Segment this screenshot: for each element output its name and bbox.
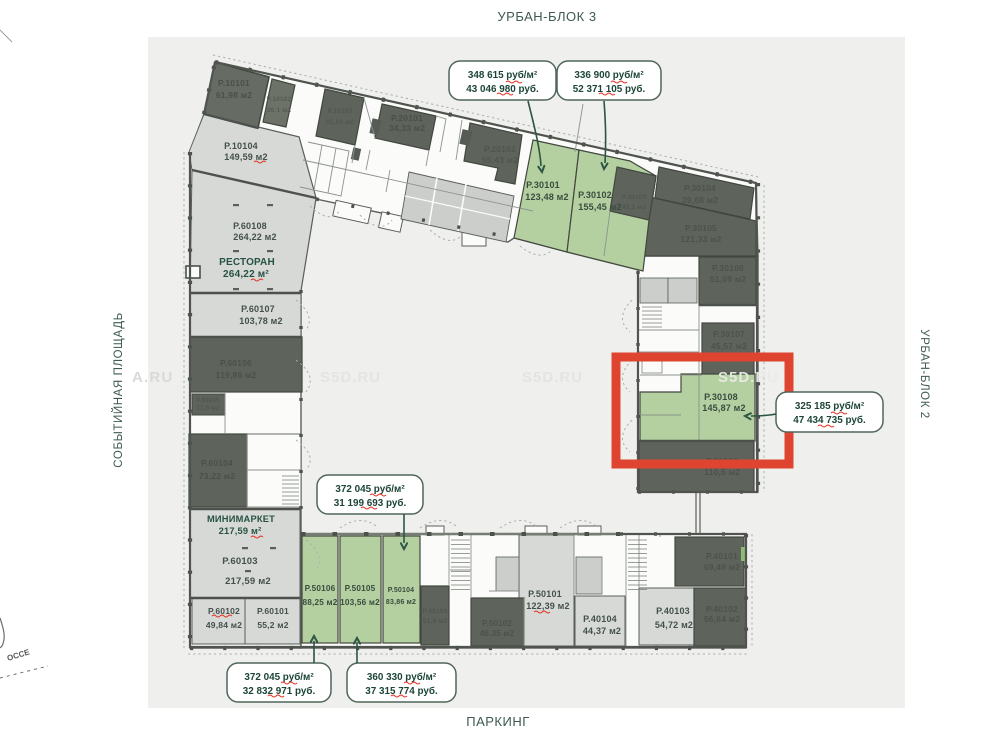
svg-text:55,2 м2: 55,2 м2 bbox=[257, 620, 288, 630]
svg-text:P.50103: P.50103 bbox=[423, 608, 448, 615]
svg-text:ПАРКИНГ: ПАРКИНГ bbox=[466, 714, 530, 729]
svg-text:123,48 м2: 123,48 м2 bbox=[525, 192, 569, 202]
svg-text:P.10104: P.10104 bbox=[224, 141, 258, 151]
svg-text:P.60103: P.60103 bbox=[222, 556, 258, 567]
svg-text:103,56 м2: 103,56 м2 bbox=[340, 598, 380, 607]
svg-text:P.30108: P.30108 bbox=[704, 392, 738, 402]
svg-text:46,35 м2: 46,35 м2 bbox=[480, 629, 515, 638]
svg-text:325 185 руб/м²: 325 185 руб/м² bbox=[795, 401, 865, 412]
svg-text:УРБАН-БЛОК 3: УРБАН-БЛОК 3 bbox=[497, 9, 596, 24]
svg-text:P.30102: P.30102 bbox=[578, 190, 612, 200]
svg-text:122,39 м2: 122,39 м2 bbox=[526, 601, 570, 611]
svg-text:P.60101: P.60101 bbox=[257, 606, 289, 616]
svg-text:145,87 м2: 145,87 м2 bbox=[702, 403, 746, 413]
svg-text:51,09 м2: 51,09 м2 bbox=[710, 274, 746, 284]
svg-text:264,22 м2: 264,22 м2 bbox=[233, 232, 277, 242]
svg-text:P.60105: P.60105 bbox=[197, 398, 220, 404]
svg-text:217,59 м2: 217,59 м2 bbox=[225, 576, 271, 587]
svg-text:P.60104: P.60104 bbox=[201, 458, 233, 468]
svg-text:S5D.RU: S5D.RU bbox=[522, 369, 583, 386]
svg-text:47 434 735 руб.: 47 434 735 руб. bbox=[793, 415, 866, 426]
svg-text:УРБАН-БЛОК 2: УРБАН-БЛОК 2 bbox=[918, 329, 930, 419]
svg-text:P.50102: P.50102 bbox=[482, 619, 513, 628]
svg-text:P.60108: P.60108 bbox=[233, 221, 267, 231]
svg-text:121,33 м2: 121,33 м2 bbox=[680, 234, 721, 244]
svg-text:P.20101: P.20101 bbox=[391, 113, 423, 123]
svg-text:103,78 м2: 103,78 м2 bbox=[239, 316, 283, 326]
svg-text:155,45 м2: 155,45 м2 bbox=[578, 202, 622, 212]
svg-text:348 615 руб/м²: 348 615 руб/м² bbox=[468, 70, 538, 81]
svg-text:61,98 м2: 61,98 м2 bbox=[216, 90, 252, 100]
svg-text:МИНИМАРКЕТ: МИНИМАРКЕТ bbox=[207, 514, 275, 524]
svg-text:83,86 м2: 83,86 м2 bbox=[386, 599, 416, 606]
svg-text:ОССЕ: ОССЕ bbox=[6, 647, 31, 663]
svg-text:P.30105: P.30105 bbox=[685, 223, 717, 233]
svg-text:S5D.RU: S5D.RU bbox=[320, 369, 381, 386]
svg-text:49,84 м2: 49,84 м2 bbox=[206, 620, 242, 630]
svg-text:СОБЫТИЙНАЯ ПЛОЩАДЬ: СОБЫТИЙНАЯ ПЛОЩАДЬ bbox=[112, 312, 125, 467]
svg-text:S5D.RU: S5D.RU bbox=[718, 369, 779, 386]
svg-text:17,0 м2: 17,0 м2 bbox=[197, 406, 220, 412]
svg-text:69,49 м2: 69,49 м2 bbox=[704, 562, 740, 572]
svg-text:264,22 м²: 264,22 м² bbox=[223, 269, 269, 280]
svg-text:43,1 м2: 43,1 м2 bbox=[622, 204, 646, 211]
svg-text:51,8 м2: 51,8 м2 bbox=[423, 618, 447, 625]
svg-text:РЕСТОРАН: РЕСТОРАН bbox=[219, 257, 275, 268]
svg-text:P.40103: P.40103 bbox=[656, 606, 690, 616]
svg-text:P.40101: P.40101 bbox=[706, 551, 738, 561]
svg-text:P.50101: P.50101 bbox=[528, 589, 562, 599]
svg-text:P.40104: P.40104 bbox=[583, 614, 617, 624]
svg-text:149,59 м2: 149,59 м2 bbox=[224, 152, 268, 162]
svg-text:P.30106: P.30106 bbox=[712, 263, 744, 273]
svg-text:217,59 м²: 217,59 м² bbox=[219, 526, 262, 536]
svg-text:54,72 м2: 54,72 м2 bbox=[655, 620, 693, 630]
svg-text:73,22 м2: 73,22 м2 bbox=[199, 471, 235, 481]
svg-text:P.30101: P.30101 bbox=[526, 180, 560, 190]
svg-text:P.60106: P.60106 bbox=[220, 358, 252, 368]
svg-text:88,25 м2: 88,25 м2 bbox=[303, 598, 338, 607]
svg-text:372 045 руб/м²: 372 045 руб/м² bbox=[335, 484, 405, 495]
svg-text:56,64 м2: 56,64 м2 bbox=[704, 614, 740, 624]
svg-text:P.10103: P.10103 bbox=[328, 108, 353, 115]
svg-text:43 046 980 руб.: 43 046 980 руб. bbox=[466, 84, 539, 95]
svg-text:P.10102: P.10102 bbox=[267, 96, 292, 103]
svg-text:336 900 руб/м²: 336 900 руб/м² bbox=[574, 70, 644, 81]
svg-text:34,33 м2: 34,33 м2 bbox=[389, 123, 425, 133]
svg-text:P.20102: P.20102 bbox=[484, 144, 516, 154]
svg-text:39,68 м2: 39,68 м2 bbox=[682, 195, 718, 205]
svg-text:45,57 м2: 45,57 м2 bbox=[711, 341, 747, 351]
svg-text:P.50106: P.50106 bbox=[305, 584, 336, 593]
svg-text:26,1 м2: 26,1 м2 bbox=[267, 107, 291, 114]
svg-text:119,86 м2: 119,86 м2 bbox=[216, 370, 257, 380]
svg-text:372 045 руб/м²: 372 045 руб/м² bbox=[244, 672, 314, 683]
svg-text:360 330 руб/м²: 360 330 руб/м² bbox=[367, 672, 437, 683]
svg-text:P.60107: P.60107 bbox=[241, 304, 275, 314]
svg-text:P.40102: P.40102 bbox=[706, 604, 738, 614]
svg-text:P.10101: P.10101 bbox=[218, 78, 250, 88]
svg-text:55,43 м2: 55,43 м2 bbox=[482, 155, 518, 165]
svg-text:P.30104: P.30104 bbox=[684, 183, 716, 193]
svg-text:P.50105: P.50105 bbox=[345, 584, 376, 593]
svg-text:P.60102: P.60102 bbox=[208, 606, 240, 616]
svg-text:P.30103: P.30103 bbox=[622, 194, 647, 201]
svg-text:25,51 м2: 25,51 м2 bbox=[326, 119, 354, 126]
svg-text:44,37 м2: 44,37 м2 bbox=[583, 626, 621, 636]
svg-text:P.50104: P.50104 bbox=[388, 587, 415, 594]
svg-text:P.30107: P.30107 bbox=[713, 329, 745, 339]
svg-text:А.RU: А.RU bbox=[132, 369, 173, 386]
